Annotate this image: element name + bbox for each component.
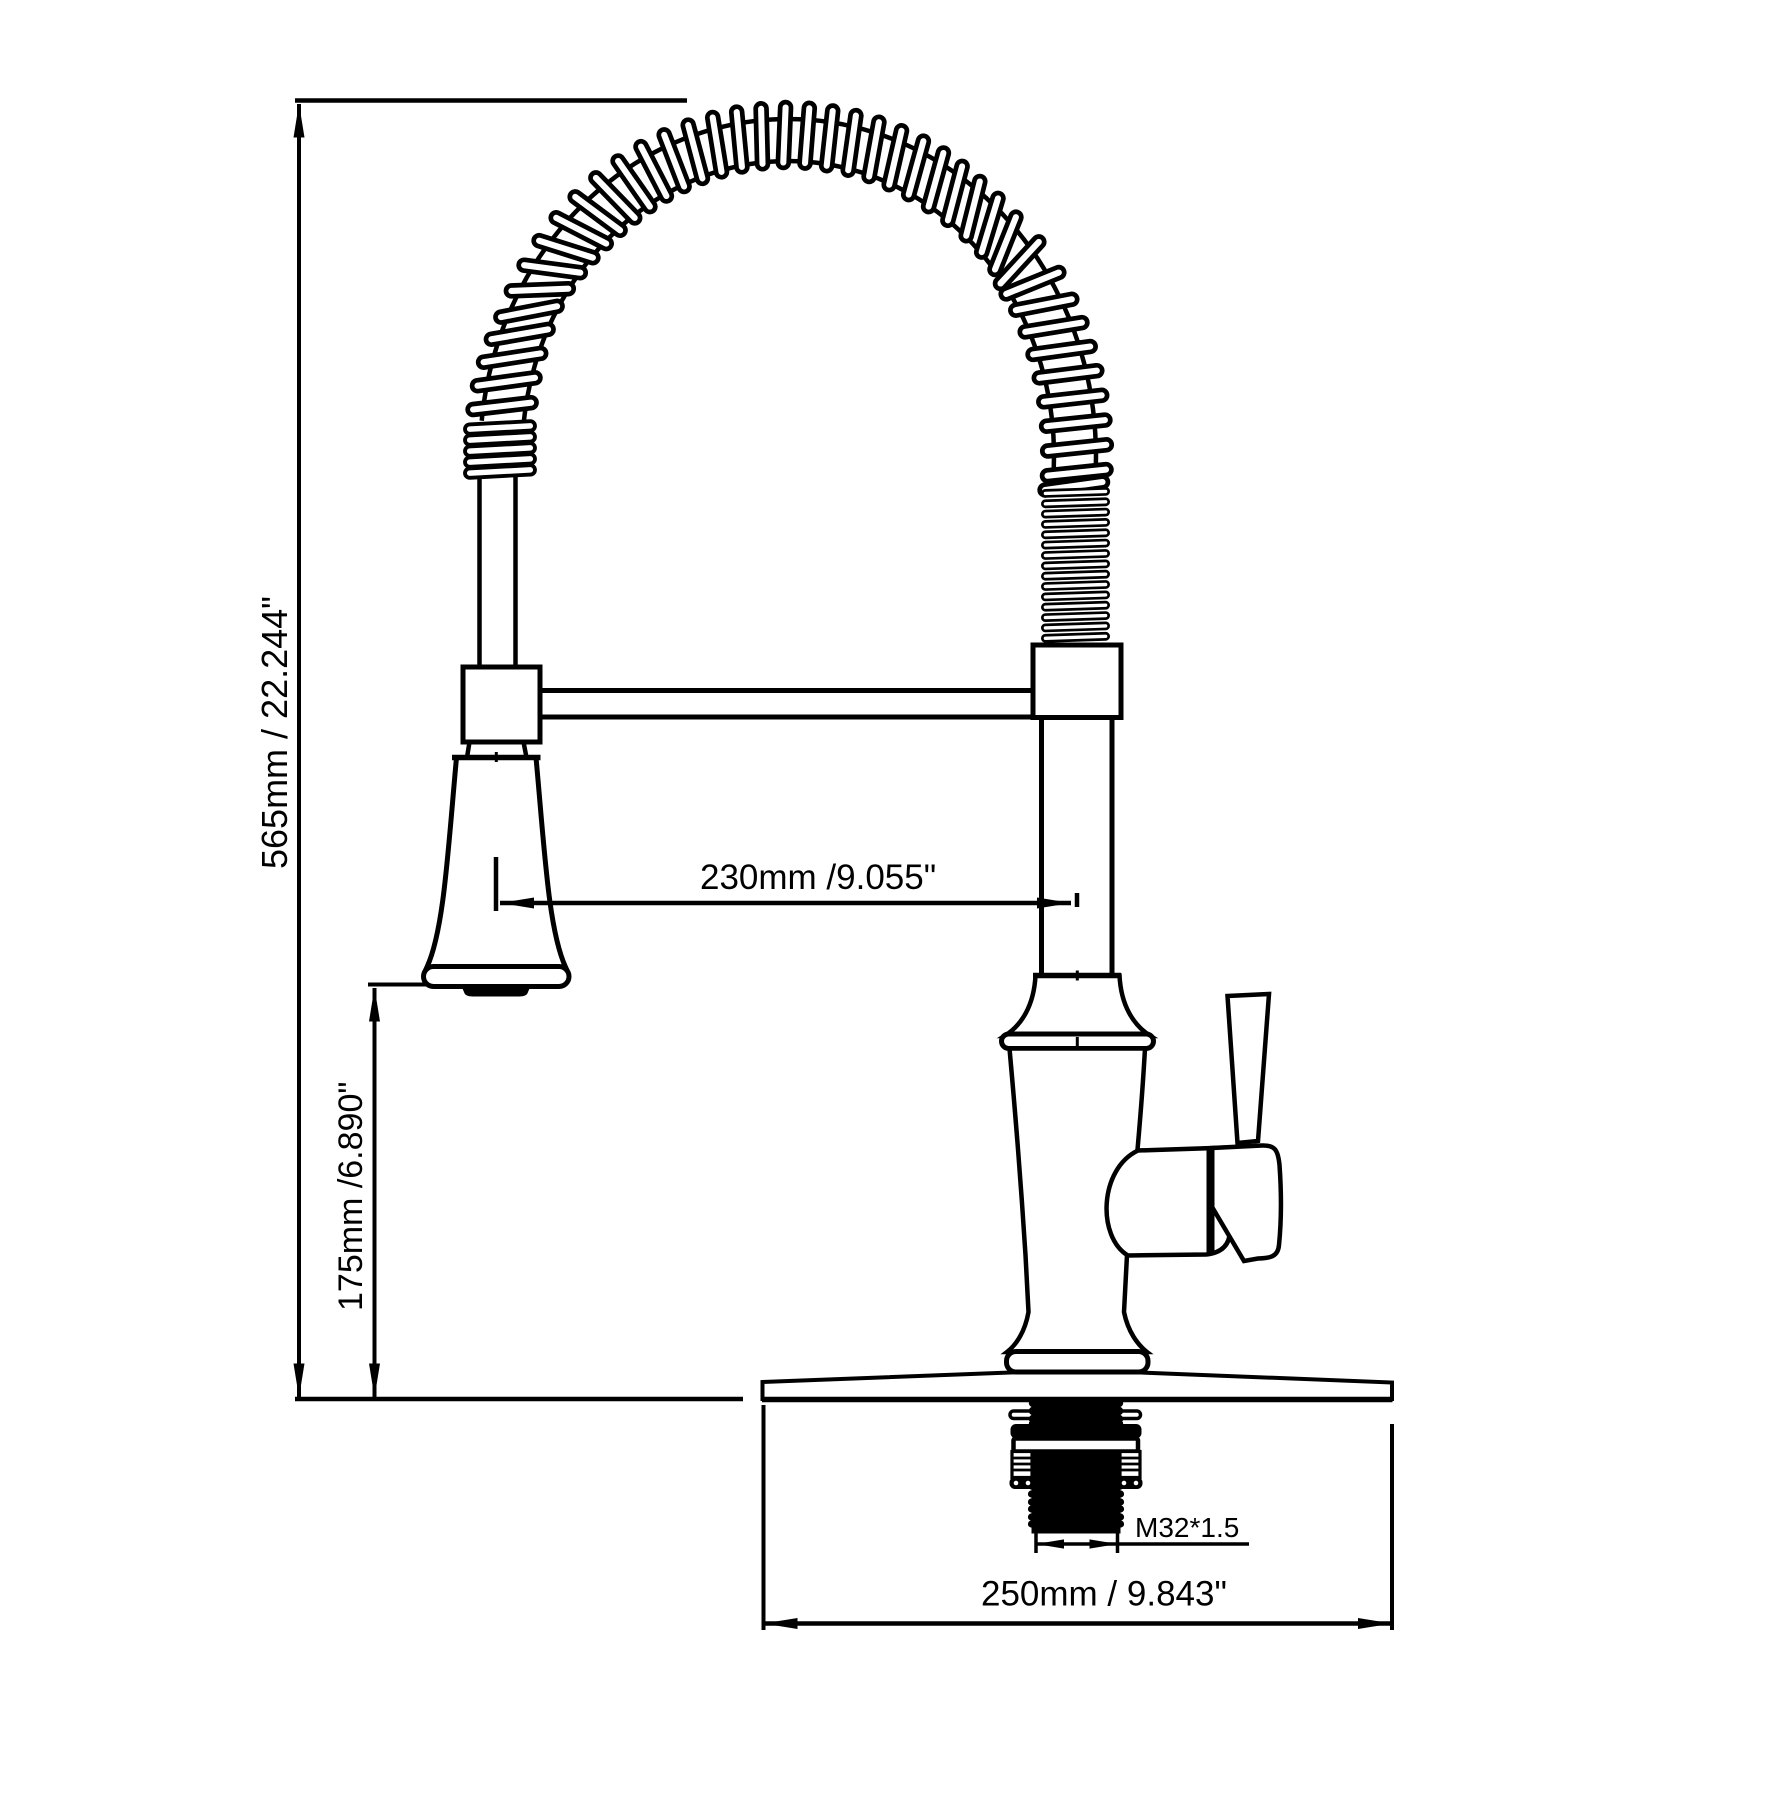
svg-text:250mm / 9.843": 250mm / 9.843" (981, 1575, 1227, 1614)
svg-text:175mm /6.890": 175mm /6.890" (332, 1082, 370, 1311)
svg-text:565mm / 22.244": 565mm / 22.244" (254, 596, 295, 869)
svg-text:230mm /9.055": 230mm /9.055" (700, 858, 936, 897)
svg-text:M32*1.5: M32*1.5 (1135, 1512, 1239, 1543)
